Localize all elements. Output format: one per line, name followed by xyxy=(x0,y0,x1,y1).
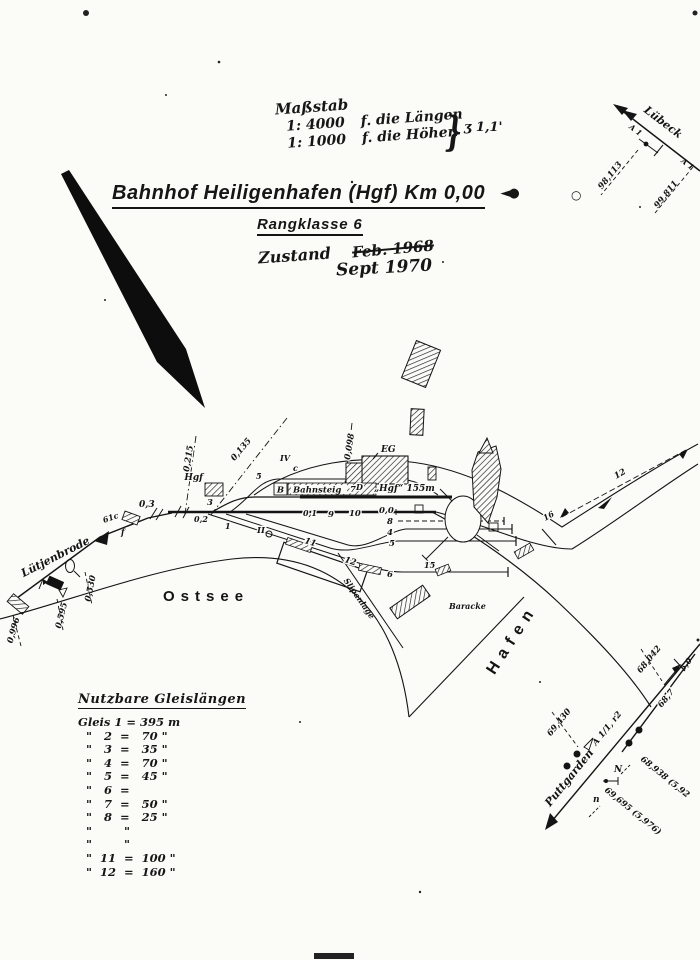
num-7: 7 xyxy=(350,485,356,495)
num-0-1: 0,1 xyxy=(303,508,317,518)
harbor-label: Hafen xyxy=(483,602,541,678)
table-row: " " xyxy=(78,825,246,839)
point-d-label: D xyxy=(355,482,363,492)
title-circle-icon: ○ xyxy=(571,188,581,202)
km-69430: 69,430 xyxy=(545,707,573,739)
num-15: 15 xyxy=(424,560,436,570)
table-row: " 5 = 45 " xyxy=(78,770,246,784)
table-row: " 2 = 70 " xyxy=(78,730,246,744)
slip-label: Slipanlage xyxy=(342,576,377,621)
table-row: " " xyxy=(78,838,246,852)
barrack-building xyxy=(390,585,430,619)
table-row: " 11 = 100 " xyxy=(78,852,246,866)
num-10: 10 xyxy=(349,509,361,519)
barrack-label: Baracke xyxy=(448,601,486,611)
num-b: B xyxy=(276,486,284,496)
num-0-2: 0,2 xyxy=(194,514,208,524)
km-0098: 0,098 xyxy=(343,433,357,461)
km-0135: 0,135 xyxy=(229,436,254,463)
km-687: 68,7 xyxy=(656,687,677,709)
signal-box xyxy=(205,483,223,496)
table-row: " 7 = 50 " xyxy=(78,798,246,812)
track-length-table: Nutzbare Gleislängen Gleis 1 = 395 m " 2… xyxy=(78,692,246,879)
num-8: 8 xyxy=(387,517,393,527)
title-row: Bahnhof Heiligenhafen (Hgf) Km 0,00 ◄● xyxy=(112,182,518,205)
platform-label: Bahnsteig xyxy=(292,486,341,496)
km-0996: 0,996 xyxy=(6,616,23,644)
km-0595: 0,595 xyxy=(54,601,70,629)
num-iv: IV xyxy=(279,453,291,463)
luebeck-km-a: 98,113 xyxy=(596,160,624,192)
num-16: 16 xyxy=(541,508,556,522)
table-row: " 8 = 25 " xyxy=(78,811,246,825)
signal-n-label: n xyxy=(593,795,600,805)
table-row: Gleis 1 = 395 m xyxy=(78,716,246,730)
km-0530: 0,530 xyxy=(83,574,98,602)
sea-label: Ostsee xyxy=(163,588,249,605)
scanned-track-plan: Lübeck A 1 A 1 98,113 99,811 Lütjenbrode… xyxy=(0,0,700,960)
platform-note: „Hgf“ 155m xyxy=(374,484,435,494)
num-0-0: 0,0 xyxy=(379,506,394,516)
num-c: c xyxy=(293,463,298,473)
page-title: Bahnhof Heiligenhafen (Hgf) Km 0,00 xyxy=(112,182,485,209)
building-eg-label: EG xyxy=(380,445,396,455)
table-row: " 6 = xyxy=(78,784,246,798)
luetjenbrode-label: Lütjenbrode xyxy=(18,534,92,580)
num-12b: 12 xyxy=(613,467,628,482)
num-4: 4 xyxy=(387,528,393,538)
scale-brace: } xyxy=(446,108,463,155)
km-68938: 68,938 (5,92 xyxy=(638,754,692,800)
km-69695: 69,695 (5,976) xyxy=(602,785,663,838)
num-3: 3 xyxy=(207,498,213,508)
track-table-title: Nutzbare Gleislängen xyxy=(78,692,246,709)
num-9: 9 xyxy=(328,510,334,520)
num-1: 1 xyxy=(225,521,231,531)
km-0215: 0,215 xyxy=(182,445,196,473)
km-68042: 68,042 xyxy=(635,644,663,676)
signal-f-label: f xyxy=(120,527,126,537)
station-building xyxy=(362,456,408,484)
subtitle-rangklasse: Rangklasse 6 xyxy=(257,216,363,236)
luebeck-label: Lübeck xyxy=(641,103,686,141)
luetjenbrode-corridor: Lütjenbrode 0,3 61c f 0,530 0,595 0,996 xyxy=(6,500,172,646)
junction-label: A 1/1, r2 xyxy=(590,710,624,749)
puttgarden-corridor: Puttgarden A 1/1, r2 69,430 N n 69,695 (… xyxy=(542,644,700,838)
km-0-3: 0,3 xyxy=(139,500,155,510)
scale-brace-note: ʒ 1,1' xyxy=(464,120,503,135)
track-61c-label: 61c xyxy=(101,510,120,525)
luebeck-marker-a: A 1 xyxy=(627,122,644,138)
num-5: 5 xyxy=(256,471,262,481)
km-zero-arrow-icon: ◄● xyxy=(500,186,517,201)
luebeck-marker-b: A 1 xyxy=(679,156,696,172)
table-row: " 12 = 160 " xyxy=(78,866,246,880)
luebeck-corridor: Lübeck A 1 A 1 98,113 99,811 xyxy=(596,103,700,213)
table-row: " 3 = 35 " xyxy=(78,743,246,757)
table-row: " 4 = 70 " xyxy=(78,757,246,771)
signalbox-label: Hgf xyxy=(183,473,205,483)
num-5b: 5 xyxy=(389,539,395,549)
luebeck-km-b: 99,811 xyxy=(652,179,680,211)
num-6: 6 xyxy=(387,570,393,580)
signal-N-label: N xyxy=(613,765,623,775)
num-ii: II xyxy=(256,526,266,536)
